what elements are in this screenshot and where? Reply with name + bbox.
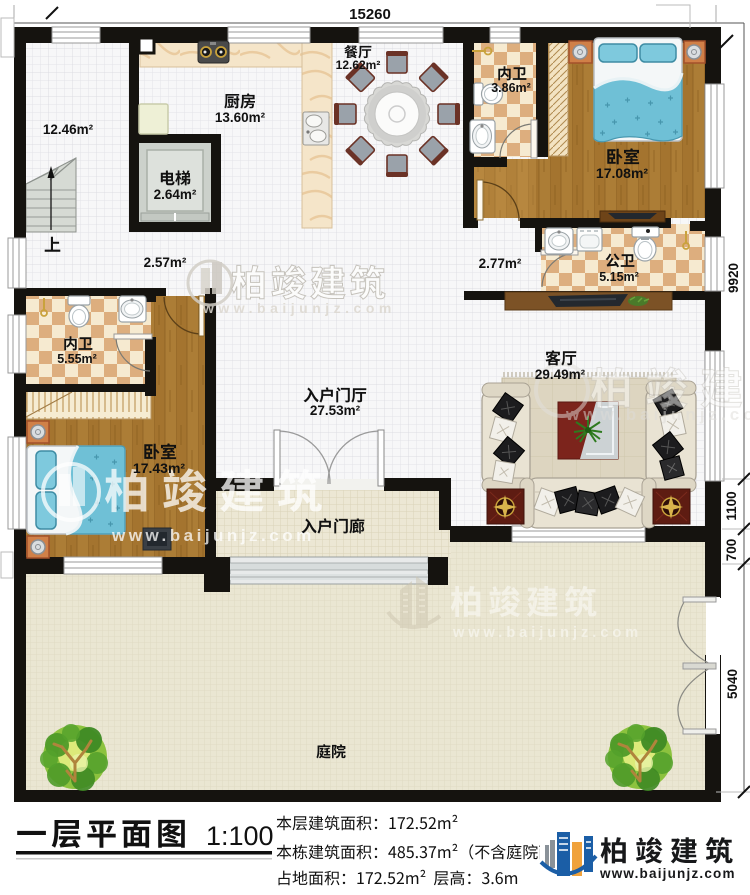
- svg-text:12.62m²: 12.62m²: [336, 58, 381, 72]
- svg-text:www.baijunjz.com: www.baijunjz.com: [202, 300, 396, 316]
- svg-text:1100: 1100: [724, 491, 739, 520]
- svg-text:17.08m²: 17.08m²: [596, 165, 648, 181]
- svg-text:5.15m²: 5.15m²: [599, 270, 639, 284]
- svg-text:9920: 9920: [726, 263, 741, 293]
- svg-text:www.baijunjz.com: www.baijunjz.com: [565, 405, 750, 424]
- svg-text:www.baijunjz.com: www.baijunjz.com: [599, 866, 736, 881]
- svg-text:5040: 5040: [725, 669, 740, 699]
- svg-text:15260: 15260: [349, 6, 391, 23]
- svg-text:1:100: 1:100: [206, 821, 274, 851]
- svg-text:5.55m²: 5.55m²: [57, 352, 97, 366]
- svg-text:700: 700: [724, 539, 739, 562]
- svg-text:2.57m²: 2.57m²: [144, 255, 187, 270]
- svg-text:12.46m²: 12.46m²: [43, 122, 94, 137]
- svg-text:2.64m²: 2.64m²: [154, 187, 197, 202]
- svg-text:www.baijunjz.com: www.baijunjz.com: [452, 625, 642, 641]
- svg-text:www.baijunjz.com: www.baijunjz.com: [111, 526, 315, 545]
- svg-text:29.49m²: 29.49m²: [535, 367, 586, 382]
- svg-text:27.53m²: 27.53m²: [310, 403, 361, 418]
- svg-text:17.43m²: 17.43m²: [133, 460, 185, 476]
- svg-text:2.77m²: 2.77m²: [479, 256, 522, 271]
- svg-text:3.86m²: 3.86m²: [491, 81, 531, 95]
- svg-text:13.60m²: 13.60m²: [215, 110, 266, 125]
